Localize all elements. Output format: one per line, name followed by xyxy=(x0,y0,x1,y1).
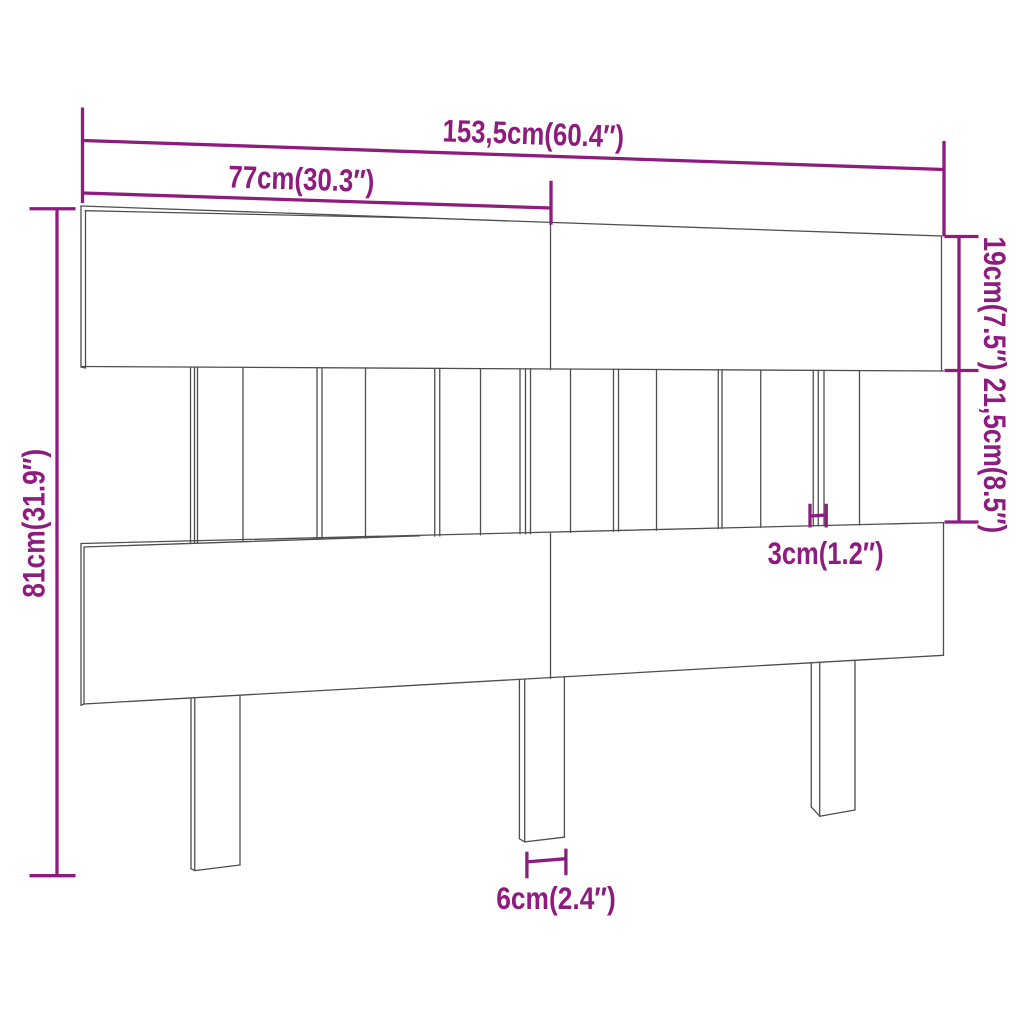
svg-text:19cm(7.5″): 19cm(7.5″) xyxy=(977,237,1013,371)
svg-text:3cm(1.2″): 3cm(1.2″) xyxy=(768,535,884,571)
svg-text:21,5cm(8.5″): 21,5cm(8.5″) xyxy=(977,378,1013,534)
svg-text:6cm(2.4″): 6cm(2.4″) xyxy=(496,880,616,916)
svg-text:153,5cm(60.4″): 153,5cm(60.4″) xyxy=(442,112,625,154)
svg-text:81cm(31.9″): 81cm(31.9″) xyxy=(16,449,52,598)
svg-text:77cm(30.3″): 77cm(30.3″) xyxy=(228,158,375,199)
